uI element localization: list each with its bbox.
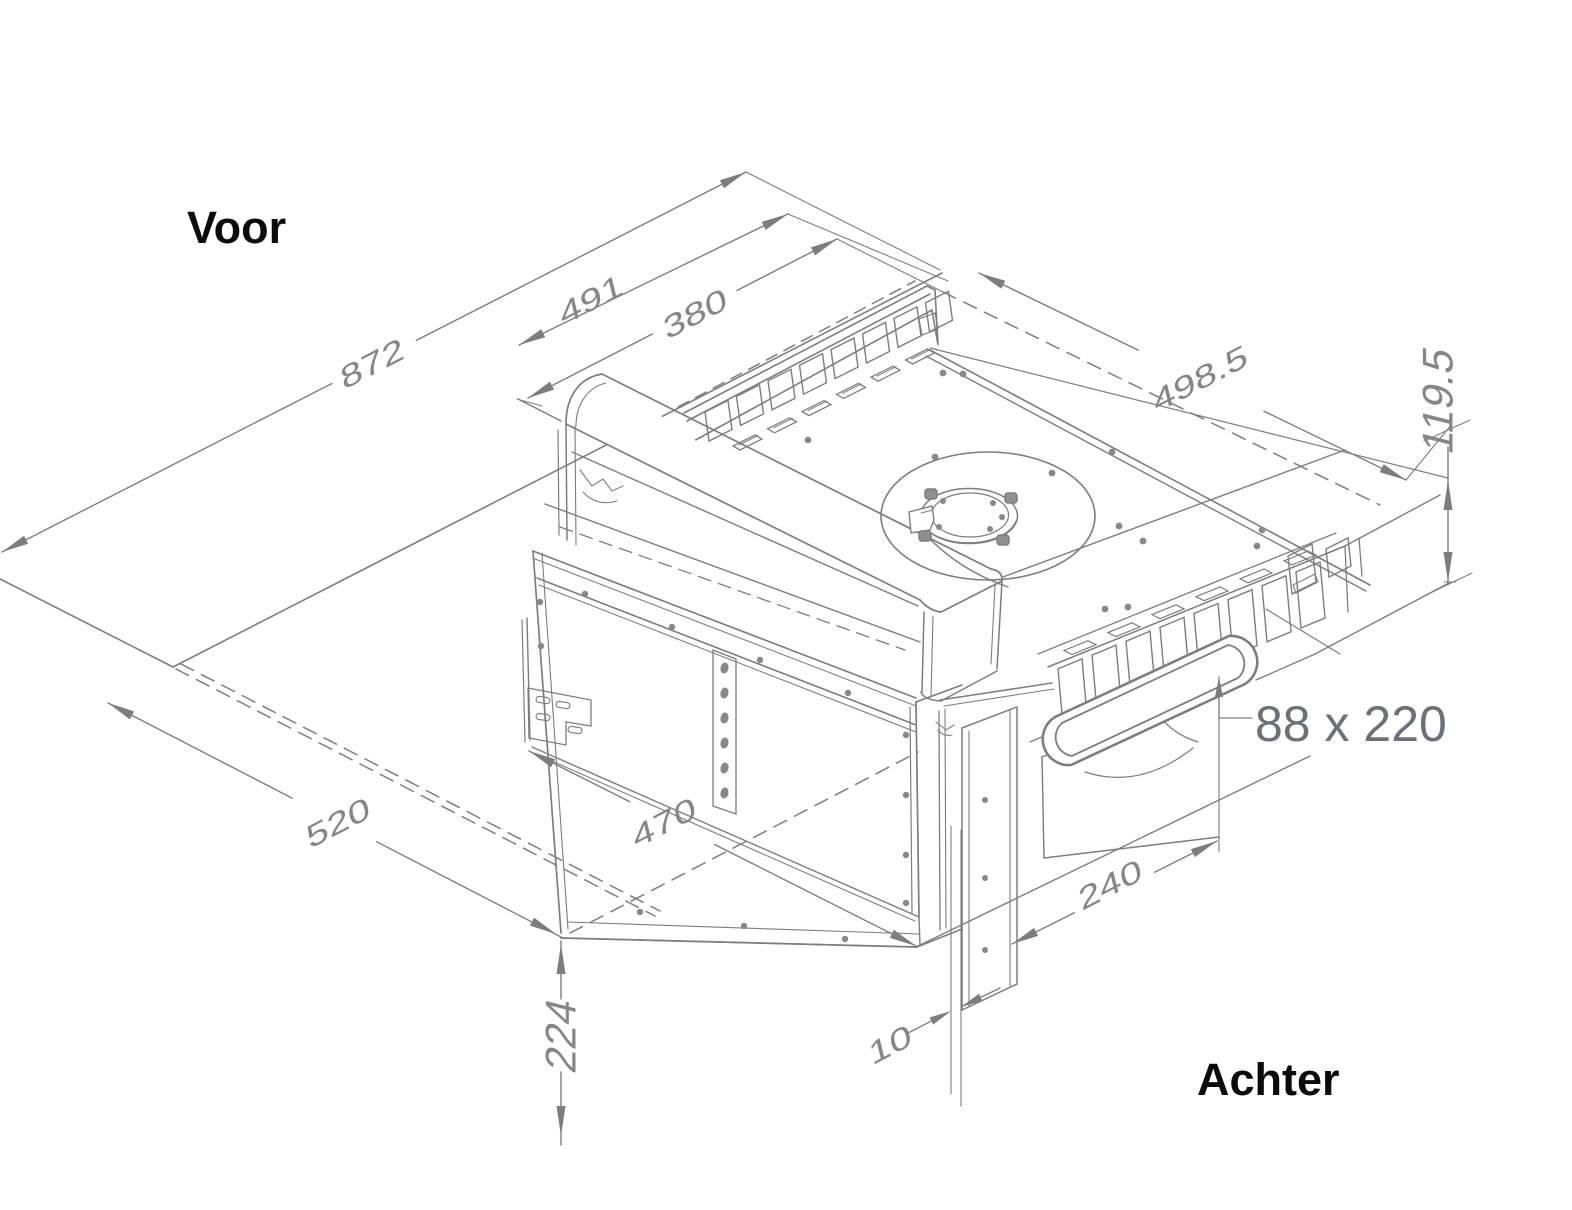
- svg-text:Achter: Achter: [1197, 1054, 1340, 1105]
- svg-text:224: 224: [537, 993, 585, 1077]
- svg-text:88 x 220: 88 x 220: [1255, 696, 1447, 752]
- svg-text:Voor: Voor: [187, 202, 286, 253]
- svg-text:119.5: 119.5: [1414, 342, 1462, 458]
